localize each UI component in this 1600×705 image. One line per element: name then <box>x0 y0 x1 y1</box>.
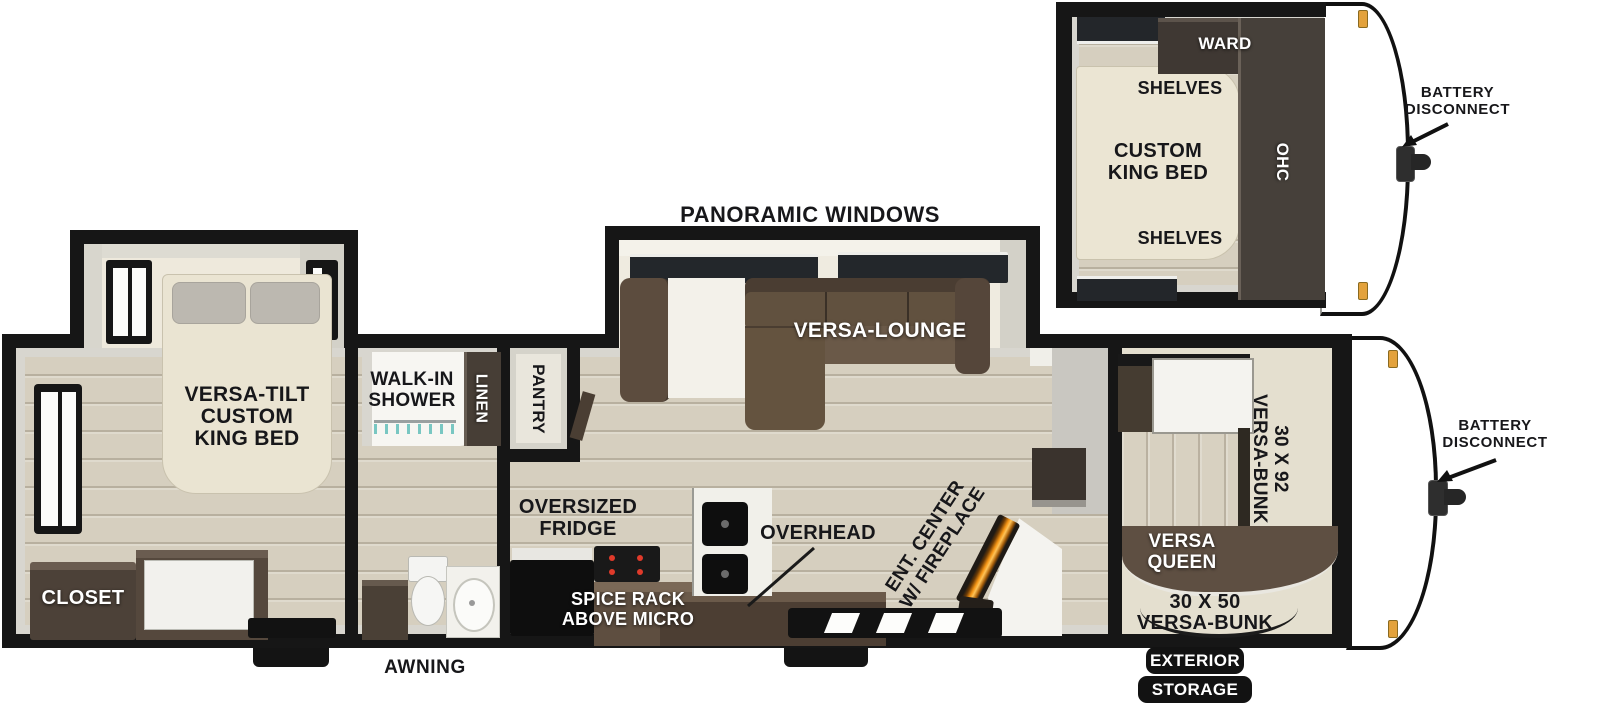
bed-pillow-right-icon <box>250 282 320 324</box>
main-front-cap <box>1346 336 1438 650</box>
inset-wall-top <box>1056 2 1326 17</box>
wall-left <box>2 334 16 648</box>
overhead-pointer-line-icon <box>740 544 820 612</box>
bedroom-slide-window-left-pane <box>113 268 128 336</box>
stabilizer-entry-icon <box>784 648 868 667</box>
inset-ohc-label: OHC <box>1273 134 1291 190</box>
inset-ward-label: WARD <box>1180 35 1270 53</box>
shower-label: WALK-IN SHOWER <box>352 369 472 411</box>
linen-label: LINEN <box>472 368 489 428</box>
inset-battery-line1: BATTERY <box>1385 84 1530 101</box>
inset-shelves-bottom-label: SHELVES <box>1120 229 1240 248</box>
bunk50-label-line2: VERSA-BUNK <box>1125 613 1285 634</box>
cooktop-burner3-icon <box>609 569 615 575</box>
spice-rack-label-line2: ABOVE MICRO <box>548 609 708 629</box>
main-battery-disconnect-stub-icon <box>1444 489 1466 505</box>
fridge-label-line2: FRIDGE <box>513 518 643 540</box>
awning-label: AWNING <box>365 658 485 678</box>
inset-window-bottom-icon <box>1077 276 1177 301</box>
stabilizer-left-icon <box>253 648 329 667</box>
bedroom-tv-slot <box>248 618 336 638</box>
exterior-storage-pill-1: EXTERIOR <box>1146 647 1244 674</box>
wall-top-seg2 <box>344 334 618 348</box>
ent-overhead-cabinet <box>1032 448 1086 500</box>
bath-sink-drain-icon <box>469 600 475 606</box>
cooktop-icon <box>594 546 660 582</box>
fridge-label-line1: OVERSIZED <box>513 496 643 518</box>
ent-overhead-cabinet-shadow <box>1032 500 1086 507</box>
inset-marker-light-bottom-icon <box>1358 282 1368 300</box>
inset-battery-disconnect-stub-icon <box>1411 154 1431 170</box>
main-marker-light-top-icon <box>1388 350 1398 368</box>
inset-battery-arrow-icon <box>1398 118 1458 154</box>
lounge-label: VERSA-LOUNGE <box>790 320 970 342</box>
bunk50-label-line1: 30 X 50 <box>1125 592 1285 613</box>
kitchen-sink-lower-drain-icon <box>721 570 729 578</box>
bunk-counter <box>1152 358 1254 434</box>
kitchen-sink-upper-drain-icon <box>721 520 729 528</box>
bedroom-slideout-sidewall-left <box>84 244 102 348</box>
shower-label-line1: WALK-IN <box>352 369 472 390</box>
wall-front <box>1332 336 1352 646</box>
cooktop-burner4-icon <box>637 569 643 575</box>
main-battery-disconnect-label: BATTERY DISCONNECT <box>1420 417 1570 451</box>
wall-top-seg3 <box>1028 334 1352 348</box>
toilet-bowl-icon <box>411 576 445 626</box>
main-battery-line1: BATTERY <box>1420 417 1570 434</box>
main-battery-line2: DISCONNECT <box>1420 434 1570 451</box>
bunk92-label-line1: 30 X 92 <box>1270 384 1291 534</box>
spice-rack-label: SPICE RACK ABOVE MICRO <box>548 589 708 629</box>
bunk92-label-line2: VERSA-BUNK <box>1249 384 1270 534</box>
fridge-label: OVERSIZED FRIDGE <box>513 496 643 540</box>
bedroom-bed-label-line3: KING BED <box>172 428 322 450</box>
exterior-storage-pill-2: STORAGE <box>1138 676 1252 703</box>
closet-label: CLOSET <box>33 588 133 609</box>
inset-bed-label: CUSTOM KING BED <box>1098 140 1218 184</box>
bedroom-dresser-front <box>144 560 254 630</box>
inset-window-top-icon <box>1077 17 1165 44</box>
cooktop-burner1-icon <box>609 555 615 561</box>
main-battery-arrow-icon <box>1432 452 1502 486</box>
spice-rack-label-line1: SPICE RACK <box>548 589 708 609</box>
versa-queen-label-line1: VERSA <box>1122 531 1242 552</box>
inset-shelves-top-label: SHELVES <box>1120 79 1240 98</box>
exterior-storage-line1: EXTERIOR <box>1150 651 1240 671</box>
wall-pantry-bottom <box>510 449 580 462</box>
inset-bed-label-line1: CUSTOM <box>1098 140 1218 162</box>
overhead-label: OVERHEAD <box>758 523 878 544</box>
floorplan-canvas: WARD SHELVES CUSTOM KING BED SHELVES OHC… <box>0 0 1600 705</box>
pantry-label: PANTRY <box>529 364 547 434</box>
cooktop-burner2-icon <box>637 555 643 561</box>
shower-spray-icon <box>374 424 456 434</box>
bunk92-label: 30 X 92 VERSA-BUNK <box>1249 384 1291 534</box>
lounge-armchair <box>620 278 671 402</box>
panoramic-windows-label: PANORAMIC WINDOWS <box>660 203 960 226</box>
exterior-storage-line2: STORAGE <box>1152 680 1239 700</box>
bedroom-bed-label-line2: CUSTOM <box>172 406 322 428</box>
shower-bar-icon <box>374 420 456 423</box>
lounge-floor-gap <box>668 278 745 398</box>
bunk50-label: 30 X 50 VERSA-BUNK <box>1125 592 1285 634</box>
bed-pillow-left-icon <box>172 282 246 324</box>
inset-marker-light-top-icon <box>1358 10 1368 28</box>
bedroom-window-left-pane1 <box>41 392 58 526</box>
bedroom-window-left-pane2 <box>62 392 76 526</box>
bath-corner-cabinet <box>362 580 408 640</box>
inset-battery-disconnect-label: BATTERY DISCONNECT <box>1385 84 1530 118</box>
bedroom-bed-label-line1: VERSA-TILT <box>172 384 322 406</box>
bedroom-bed-label: VERSA-TILT CUSTOM KING BED <box>172 384 322 450</box>
inset-bed-label-line2: KING BED <box>1098 162 1218 184</box>
inset-battery-line2: DISCONNECT <box>1385 101 1530 118</box>
main-marker-light-bottom-icon <box>1388 620 1398 638</box>
shower-label-line2: SHOWER <box>352 390 472 411</box>
bedroom-slide-window-left-pane2 <box>132 268 146 336</box>
inset-wall-left <box>1056 2 1072 308</box>
bunk-wardrobe <box>1118 366 1155 432</box>
